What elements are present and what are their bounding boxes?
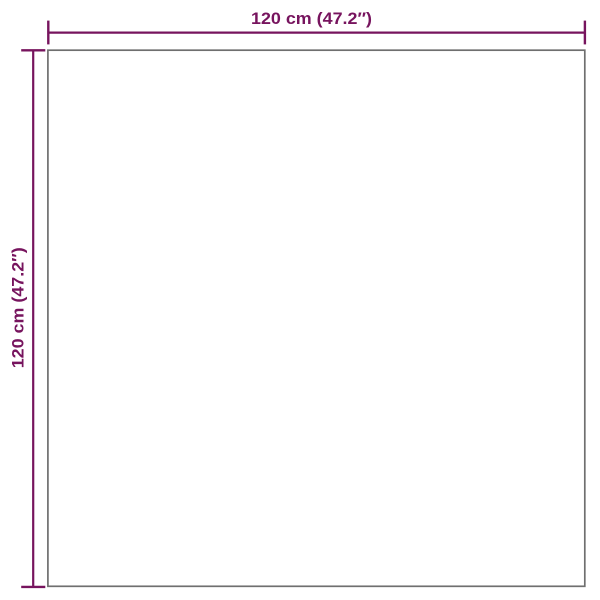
svg-text:120 cm (47.2″): 120 cm (47.2″) [10,247,28,368]
svg-text:120 cm (47.2″): 120 cm (47.2″) [251,10,372,28]
